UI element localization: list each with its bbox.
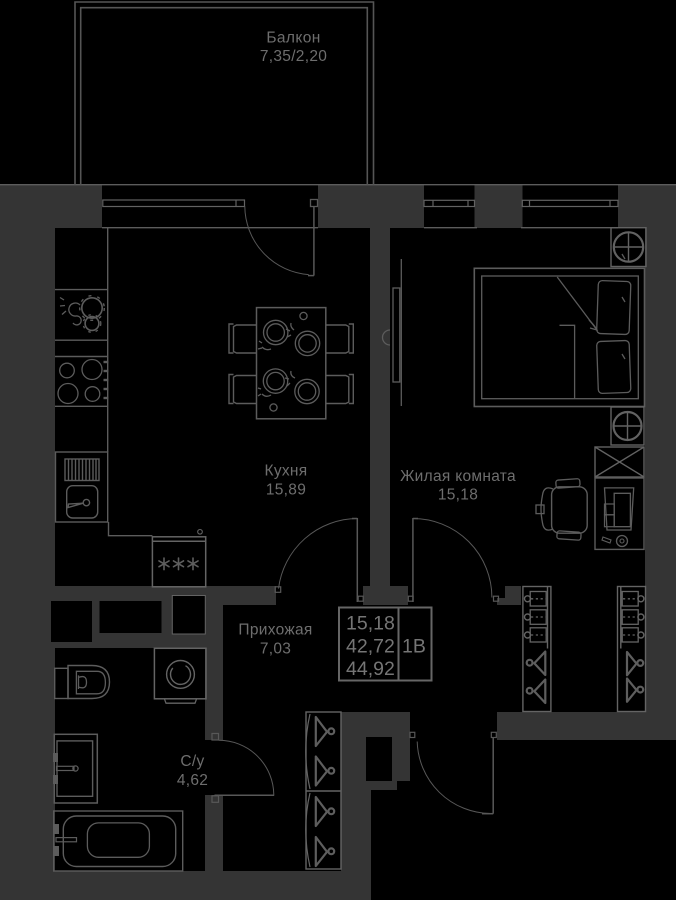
svg-text:Прихожая: Прихожая — [238, 622, 312, 639]
svg-text:7,03: 7,03 — [260, 641, 291, 658]
svg-text:15,18: 15,18 — [346, 613, 395, 635]
svg-text:42,72: 42,72 — [346, 635, 395, 657]
svg-text:7,35/2,20: 7,35/2,20 — [260, 48, 327, 65]
svg-text:Балкон: Балкон — [266, 30, 320, 47]
svg-text:4,62: 4,62 — [177, 772, 208, 789]
svg-text:1В: 1В — [402, 635, 426, 657]
svg-text:15,89: 15,89 — [266, 482, 306, 499]
svg-text:15,18: 15,18 — [438, 487, 478, 504]
svg-text:Кухня: Кухня — [265, 463, 308, 480]
svg-text:С/у: С/у — [180, 753, 204, 770]
svg-text:44,92: 44,92 — [346, 658, 395, 680]
svg-text:Жилая комната: Жилая комната — [400, 468, 516, 485]
